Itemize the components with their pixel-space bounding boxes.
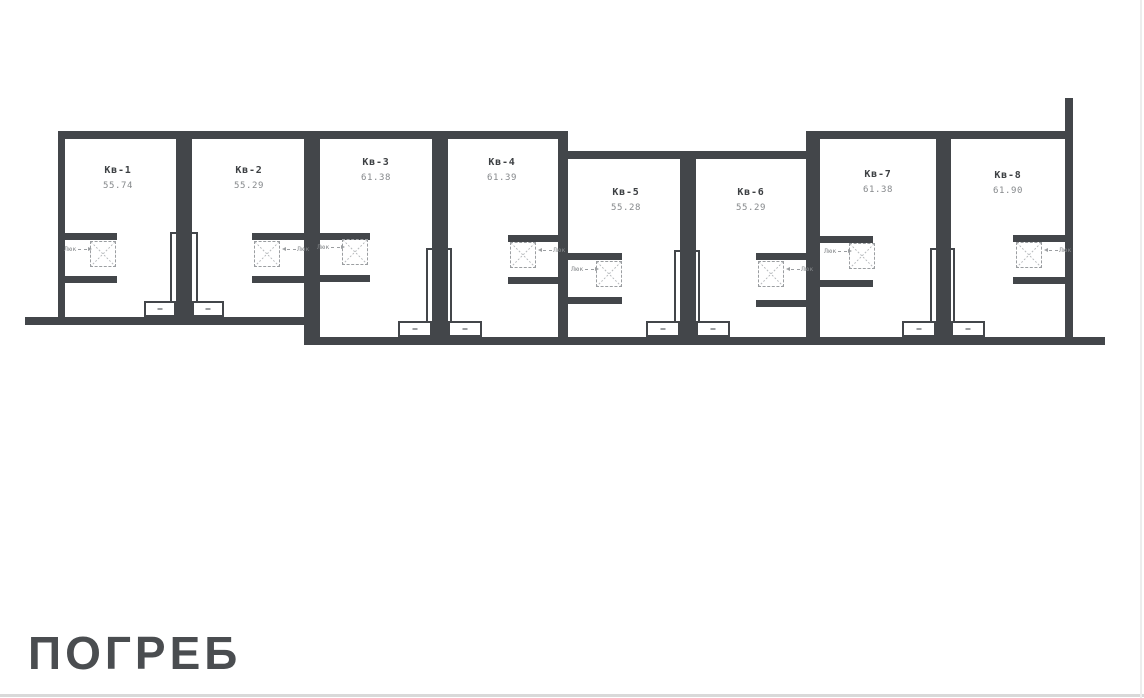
entry-box — [144, 301, 176, 317]
unit-area: 61.38 — [306, 173, 446, 183]
unit-label: Кв-6 55.29 — [681, 187, 821, 213]
unit-label: Кв-1 55.74 — [48, 165, 188, 191]
unit-name: Кв-6 — [681, 187, 821, 198]
niche-wall — [820, 280, 873, 287]
hatch-box — [849, 243, 875, 269]
niche-wall — [568, 297, 622, 304]
entry-mark — [966, 328, 971, 330]
stair-shaft-line — [426, 248, 428, 322]
hatch-tag: Люк — [824, 247, 852, 255]
leader-line — [585, 269, 594, 270]
entry-mark — [917, 328, 922, 330]
hatch-cross-icon — [343, 240, 367, 264]
stair-shaft-line — [170, 232, 172, 302]
hatch-label: Люк — [64, 245, 77, 253]
unit-name: Кв-7 — [808, 169, 948, 180]
niche-wall — [320, 275, 370, 282]
page-right-rule — [1140, 0, 1142, 698]
hatch-box — [254, 241, 280, 267]
unit-name: Кв-2 — [179, 165, 319, 176]
stair-shaft-line — [674, 250, 676, 322]
stair-shaft-line — [930, 248, 938, 250]
unit-area: 55.29 — [681, 203, 821, 213]
hatch-tag: Люк — [64, 245, 92, 253]
unit-area: 55.28 — [556, 203, 696, 213]
hatch-tag: Люк — [317, 243, 345, 251]
floor-plan-canvas: Люк Люк Люк Люк Люк Люк Люк Люк Кв-1 55.… — [0, 0, 1144, 698]
stair-shaft-line — [930, 248, 932, 322]
exterior-wall-left — [58, 131, 65, 325]
hatch-box — [596, 261, 622, 287]
arrow-left-icon — [786, 267, 790, 271]
unit-label: Кв-3 61.38 — [306, 157, 446, 183]
unit-name: Кв-5 — [556, 187, 696, 198]
hatch-label: Люк — [824, 247, 837, 255]
arrow-right-icon — [341, 245, 345, 249]
hatch-box — [342, 239, 368, 265]
leader-line — [791, 269, 800, 270]
niche-wall — [508, 277, 558, 284]
niche-wall — [252, 276, 304, 283]
hatch-cross-icon — [1017, 243, 1041, 267]
stair-shaft-line — [953, 248, 955, 322]
entry-box — [398, 321, 432, 337]
niche-wall — [568, 253, 622, 260]
entry-box — [696, 321, 730, 337]
entry-mark — [413, 328, 418, 330]
entry-box — [646, 321, 680, 337]
stair-shaft-line — [196, 232, 198, 302]
niche-wall — [65, 276, 117, 283]
unit-name: Кв-4 — [432, 157, 572, 168]
exterior-wall-bottom-block-a — [25, 317, 320, 325]
entry-box — [902, 321, 936, 337]
niche-wall — [756, 300, 806, 307]
unit-name: Кв-1 — [48, 165, 188, 176]
niche-wall — [756, 253, 806, 260]
hatch-label: Люк — [801, 265, 814, 273]
leader-line — [838, 251, 847, 252]
hatch-tag: Люк — [786, 265, 814, 273]
unit-area: 61.38 — [808, 185, 948, 195]
stair-shaft-line — [947, 248, 955, 250]
hatch-box — [758, 261, 784, 287]
entry-mark — [206, 308, 211, 310]
arrow-left-icon — [282, 247, 286, 251]
hatch-box — [90, 241, 116, 267]
hatch-cross-icon — [850, 244, 874, 268]
unit-label: Кв-8 61.90 — [938, 170, 1078, 196]
hatch-cross-icon — [759, 262, 783, 286]
leader-line — [78, 249, 87, 250]
leader-line — [543, 250, 552, 251]
entry-mark — [463, 328, 468, 330]
divider-wall-unit-6-7 — [806, 131, 820, 345]
unit-label: Кв-7 61.38 — [808, 169, 948, 195]
hatch-cross-icon — [597, 262, 621, 286]
niche-wall — [508, 235, 558, 242]
exterior-wall-top-block-c — [560, 151, 810, 159]
hatch-tag: Люк — [538, 246, 566, 254]
hatch-tag: Люк — [571, 265, 599, 273]
hatch-label: Люк — [571, 265, 584, 273]
entry-box — [192, 301, 224, 317]
arrow-right-icon — [88, 247, 92, 251]
leader-line — [287, 249, 296, 250]
niche-wall — [1013, 277, 1065, 284]
arrow-right-icon — [595, 267, 599, 271]
stair-shaft-line — [170, 232, 178, 234]
leader-line — [1049, 250, 1058, 251]
stair-shaft-line — [190, 232, 198, 234]
floor-title: ПОГРЕБ — [28, 626, 241, 680]
hatch-box — [1016, 242, 1042, 268]
unit-label: Кв-5 55.28 — [556, 187, 696, 213]
unit-name: Кв-8 — [938, 170, 1078, 181]
stair-shaft-line — [698, 250, 700, 322]
hatch-box — [510, 242, 536, 268]
hatch-label: Люк — [1059, 246, 1072, 254]
exterior-wall-right — [1065, 98, 1073, 345]
arrow-left-icon — [1044, 248, 1048, 252]
hatch-cross-icon — [255, 242, 279, 266]
stair-shaft-line — [674, 250, 682, 252]
unit-area: 61.90 — [938, 186, 1078, 196]
niche-wall — [1013, 235, 1065, 242]
hatch-tag: Люк — [282, 245, 310, 253]
hatch-cross-icon — [511, 243, 535, 267]
page-bottom-rule — [0, 694, 1144, 697]
arrow-right-icon — [848, 249, 852, 253]
unit-name: Кв-3 — [306, 157, 446, 168]
leader-line — [331, 247, 340, 248]
unit-area: 61.39 — [432, 173, 572, 183]
stair-shaft-line — [692, 250, 700, 252]
stair-shaft-line — [444, 248, 452, 250]
unit-label: Кв-2 55.29 — [179, 165, 319, 191]
hatch-label: Люк — [553, 246, 566, 254]
stair-shaft-line — [426, 248, 434, 250]
hatch-cross-icon — [91, 242, 115, 266]
stair-shaft-line — [450, 248, 452, 322]
unit-label: Кв-4 61.39 — [432, 157, 572, 183]
exterior-wall-top-block-d — [810, 131, 1072, 139]
entry-mark — [661, 328, 666, 330]
niche-wall — [252, 233, 304, 240]
niche-wall — [65, 233, 117, 240]
hatch-tag: Люк — [1044, 246, 1072, 254]
entry-box — [448, 321, 482, 337]
hatch-label: Люк — [317, 243, 330, 251]
unit-area: 55.74 — [48, 181, 188, 191]
unit-area: 55.29 — [179, 181, 319, 191]
entry-box — [951, 321, 985, 337]
exterior-wall-bottom-block-bcd — [311, 337, 1105, 345]
hatch-label: Люк — [297, 245, 310, 253]
entry-mark — [711, 328, 716, 330]
niche-wall — [820, 236, 873, 243]
arrow-left-icon — [538, 248, 542, 252]
entry-mark — [158, 308, 163, 310]
